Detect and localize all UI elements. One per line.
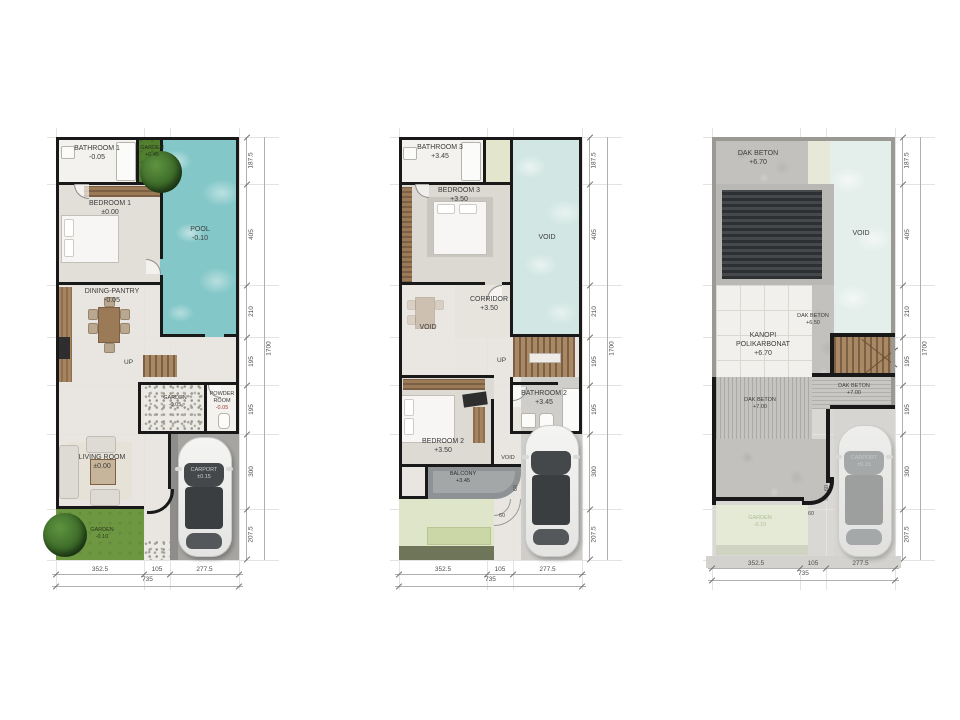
- room-label-garden-mid: GARDEN -0.05: [150, 395, 200, 409]
- room-level: -0.05: [150, 402, 200, 409]
- dim-value: 352.5: [92, 566, 108, 573]
- room-label-dak-right: DAK BETON +7.00: [826, 383, 882, 397]
- pillow: [459, 204, 477, 214]
- wall: [236, 137, 239, 434]
- room-level: ±0.00: [74, 462, 130, 471]
- room-label-dining: DINING-PANTRY -0.05: [80, 287, 144, 305]
- dimension-row: 352.5 105 277.5 735: [56, 564, 239, 590]
- car: CARPORT ±0.15: [838, 425, 890, 555]
- dim-value: 210: [248, 306, 255, 317]
- pillow: [64, 219, 74, 237]
- garden-mid-area: [144, 385, 206, 434]
- room-label-kanopi: KANOPI POLIKARBONAT +6.70: [728, 331, 798, 358]
- chair: [120, 323, 130, 334]
- carport-label: CARPORT ±0.15: [178, 467, 230, 480]
- dim-value: 187.5: [248, 152, 255, 168]
- room-label-bedroom1: BEDROOM 1 ±0.00: [80, 199, 140, 217]
- armchair: [86, 436, 116, 453]
- up-label: UP: [124, 359, 133, 366]
- chair: [88, 323, 98, 334]
- counter: [473, 407, 485, 443]
- room-level: -0.05: [80, 296, 144, 305]
- dimension-line: [52, 574, 243, 575]
- hedge-strip: [399, 546, 494, 560]
- wall: [160, 334, 205, 337]
- wall: [138, 431, 239, 434]
- ghost-chair: [435, 300, 444, 310]
- floor-plan-sheet: CARPORT ±0.15 BATHROOM 1 -0.05 GARD: [0, 0, 960, 720]
- carport-label: CARPORT ±0.15: [838, 455, 890, 468]
- room-name: DINING-PANTRY: [85, 288, 140, 295]
- dim-value: 300: [248, 466, 255, 477]
- dimension-line: [52, 586, 243, 587]
- plan-second-floor: BATHROOM 3 +3.45 BEDROOM 3 +3.50 VOID CO…: [399, 137, 582, 560]
- armchair: [90, 489, 120, 506]
- void-area: [830, 141, 891, 337]
- room-level: ±0.00: [80, 208, 140, 217]
- room-label-dak-top: DAK BETON +6.70: [726, 149, 790, 167]
- dimension-row: 352.5 105 277.5 735: [712, 558, 895, 584]
- room-label-void: VOID: [838, 229, 884, 238]
- dim-60: 60: [824, 485, 830, 491]
- car-rear-window: [186, 533, 222, 549]
- stairs: [143, 355, 177, 377]
- grid-line: [239, 128, 240, 590]
- room-level: -0.05: [64, 153, 130, 162]
- room-label-living: LIVING ROOM ±0.00: [74, 453, 130, 471]
- pillow: [404, 418, 414, 435]
- wall: [168, 434, 171, 489]
- room-label-bathroom3: BATHROOM 3 +3.45: [407, 143, 473, 161]
- room-level: +0.45: [132, 152, 172, 159]
- room-name: GARDEN: [163, 395, 187, 401]
- toilet: [218, 413, 230, 429]
- room-name: POOL: [190, 226, 209, 233]
- dim-value: 195: [248, 356, 255, 367]
- planter-box: [427, 527, 491, 545]
- room-label-garden: GARDEN -0.10: [736, 515, 784, 529]
- wall: [138, 382, 141, 434]
- room-label-void-left: VOID: [411, 323, 445, 332]
- dim-value: 1700: [266, 341, 273, 355]
- dim-value: 195: [248, 404, 255, 415]
- pillow: [64, 239, 74, 257]
- room-label-balcony: BALCONY +3.45: [437, 471, 489, 485]
- wall: [56, 282, 160, 285]
- room-name: POWDER ROOM: [210, 391, 235, 404]
- dim-value: 277.5: [196, 566, 212, 573]
- room-label-void-small: VOID: [495, 455, 521, 462]
- dimension-total: 1700: [262, 137, 277, 560]
- dim-value: 207.5: [248, 526, 255, 542]
- ribbed-roof: [722, 190, 822, 279]
- dimension-column: 187.5 405 210 195 195 300 207.5 1700: [586, 137, 620, 560]
- room-label-dak-mid: DAK BETON +6.50: [790, 313, 836, 327]
- room-name: CARPORT: [191, 467, 218, 473]
- room-name: LIVING ROOM: [79, 454, 126, 461]
- plan-ground-floor: CARPORT ±0.15 BATHROOM 1 -0.05 GARD: [56, 137, 239, 560]
- room-label-dak-left: DAK BETON +7.00: [734, 397, 786, 411]
- room-label-void-right: VOID: [521, 233, 573, 242]
- wardrobe: [403, 379, 485, 390]
- dim-value: 105: [152, 566, 163, 573]
- ghost-chair: [407, 300, 416, 310]
- room-level: -0.10: [168, 234, 232, 243]
- chair: [120, 309, 130, 320]
- room-level: ±0.15: [197, 474, 211, 480]
- dim-60: 60: [499, 513, 505, 519]
- wall: [160, 275, 163, 337]
- room-label-garden-bottom: GARDEN -0.10: [80, 527, 124, 541]
- room-level: -0.10: [80, 534, 124, 541]
- dimension-column: 187.5 405 210 195 195 300 207.5 1700: [899, 137, 933, 560]
- wall: [56, 137, 239, 140]
- dim-60: 60: [808, 511, 814, 517]
- room-name: GARDEN: [140, 145, 164, 151]
- room-label-bathroom1: BATHROOM 1 -0.05: [64, 144, 130, 162]
- car: CARPORT ±0.15: [178, 437, 230, 555]
- dim-total: 735: [56, 576, 239, 583]
- room-label-bedroom2: BEDROOM 2 +3.50: [413, 437, 473, 455]
- stove: [58, 337, 70, 359]
- room-label-bathroom2: BATHROOM 2 +3.45: [515, 389, 573, 407]
- room-name: BEDROOM 1: [89, 200, 131, 207]
- room-level: -0.05: [207, 405, 237, 412]
- hedge-strip: [716, 545, 808, 555]
- dim-value: 405: [248, 229, 255, 240]
- room-name: BATHROOM 1: [74, 145, 120, 152]
- path-gravel: [144, 541, 170, 560]
- wall: [138, 382, 239, 385]
- room-label-garden-top: GARDEN +0.45: [132, 145, 172, 159]
- room-label-corridor: CORRIDOR +3.50: [465, 295, 513, 313]
- dimension-row: 352.5 105 277.5 735: [399, 564, 582, 590]
- room-name: GARDEN: [90, 527, 114, 533]
- dim-60: 60: [513, 485, 519, 491]
- chair: [104, 343, 115, 353]
- wall: [224, 334, 239, 337]
- planter-strip: [485, 137, 513, 184]
- car-roof: [185, 487, 223, 529]
- room-label-bedroom3: BEDROOM 3 +3.50: [429, 186, 489, 204]
- dining-table: [98, 307, 120, 343]
- up-label: UP: [497, 357, 506, 364]
- dimension-column: 187.5 405 210 195 195 300 207.5 1700: [243, 137, 277, 560]
- stair-landing: [529, 353, 561, 363]
- chair: [88, 309, 98, 320]
- planter-strip: [808, 141, 830, 184]
- pillow: [437, 204, 455, 214]
- plan-roof: CARPORT ±0.15 DAK BETON +6.70 VOID DAK B…: [712, 137, 895, 560]
- car: [525, 425, 577, 555]
- room-label-powder: POWDER ROOM -0.05: [207, 391, 237, 412]
- wall: [56, 137, 59, 509]
- pillow: [404, 399, 414, 416]
- room-label-pool: POOL -0.10: [168, 225, 232, 243]
- wall: [56, 506, 144, 509]
